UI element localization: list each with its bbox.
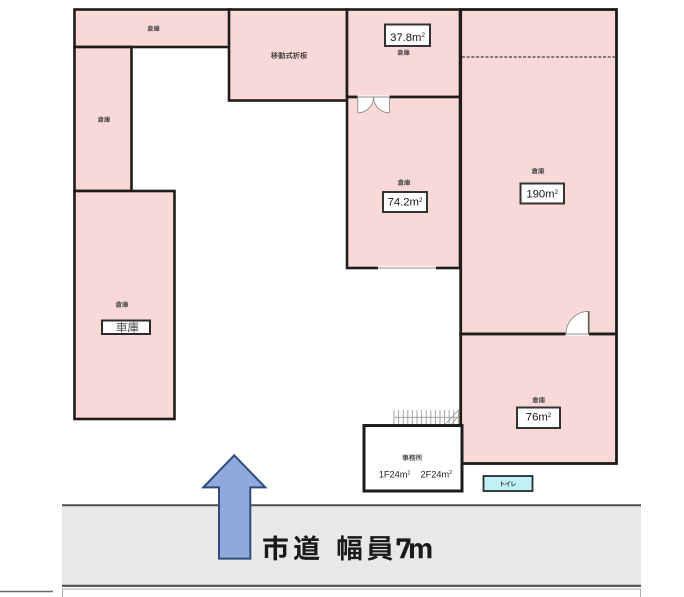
svg-text:37.8m2: 37.8m2 [390, 32, 425, 44]
svg-text:74.2m2: 74.2m2 [388, 197, 423, 209]
svg-text:1F24m2 2F24m2: 1F24m2 2F24m2 [379, 469, 452, 479]
svg-text:190m2: 190m2 [526, 188, 558, 200]
